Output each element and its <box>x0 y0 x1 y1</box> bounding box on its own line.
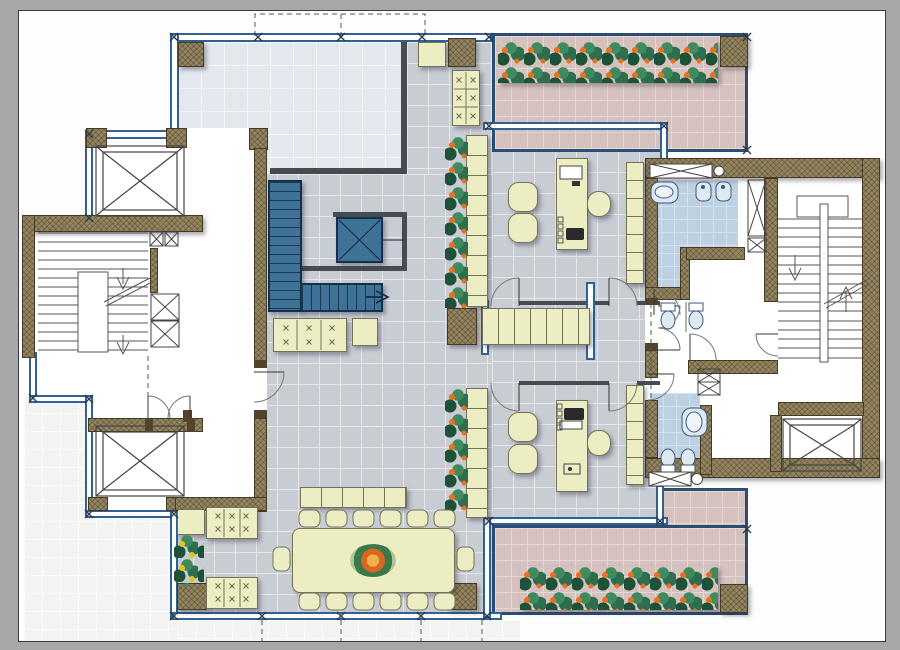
lounge-sofa-top <box>206 507 258 539</box>
terrace-bottom-planter <box>520 566 718 610</box>
rightwing-right-wall <box>862 158 880 478</box>
corridor-wall-lower <box>519 381 609 385</box>
lounge-sofa-bottom <box>206 577 258 609</box>
leftwing-right-wall-upper <box>254 148 267 365</box>
armchair <box>508 213 538 243</box>
cabinet-strip-lower-left <box>466 388 488 518</box>
armchair <box>508 412 538 442</box>
rightwing-top-wall <box>645 158 880 178</box>
hall-sofa <box>452 70 480 126</box>
stairblock-left-wall <box>22 215 35 358</box>
rightwing-elevator-top-wall <box>778 402 864 416</box>
floor-plan-canvas <box>0 0 900 650</box>
door-jamb <box>645 298 658 305</box>
armchair <box>508 444 538 474</box>
hall-side-table <box>418 42 446 67</box>
bathroom-step-wall-b <box>686 247 745 260</box>
column-leftwing-d <box>88 497 108 511</box>
corridor-wall-upper <box>519 301 609 305</box>
lounge-plant <box>174 534 204 586</box>
terrace-top-planter <box>498 41 718 83</box>
rightwing-inner-wall-h <box>688 360 778 374</box>
column-corridor <box>447 308 477 345</box>
stair-sofa <box>273 318 347 352</box>
rightwing-elevator-left-wall <box>770 415 782 472</box>
desk-lower-office <box>556 400 588 492</box>
conference-sideboard <box>300 487 407 508</box>
duct-strip <box>150 248 158 293</box>
cabinet-strip-upper-left <box>466 135 488 307</box>
cabinet-strip-lower-right <box>626 385 644 485</box>
rightwing-left-wall-c <box>645 400 658 458</box>
terrace-bottom-lobe-floor <box>658 488 748 528</box>
cabinet-strip-upper-right <box>626 162 644 284</box>
lounge-square-table <box>177 583 207 610</box>
feature-stair-lower-flight <box>300 283 383 312</box>
armchair <box>508 182 538 212</box>
planter-strip-upper <box>445 136 468 308</box>
rightwing-inner-wall-v <box>764 178 778 302</box>
conference-centerpiece <box>350 544 396 577</box>
office-chair-upper <box>587 191 611 217</box>
stairblock-top-wall <box>22 215 203 232</box>
column-hall-left <box>178 42 204 67</box>
column-terrace-top <box>720 36 748 67</box>
wall-connector-right-bottom <box>656 485 664 525</box>
wall-jog <box>29 395 93 403</box>
rightwing-left-wall-b <box>645 350 658 378</box>
planter-strip-lower <box>445 388 468 512</box>
wall-lounge-jog <box>85 510 178 518</box>
bathroom-lower-right-wall <box>700 405 712 475</box>
left-core-base <box>85 128 267 512</box>
feature-stair-void <box>336 217 383 263</box>
feature-stair-upper-flight <box>268 180 302 312</box>
corridor-cabinet <box>482 308 590 345</box>
white-terrace-strip <box>178 620 520 641</box>
bathroom-upper-floor <box>648 180 738 253</box>
rightwing-left-wall-a <box>645 178 658 305</box>
rightwing-bottom-wall <box>645 458 880 478</box>
wall-top <box>172 33 492 42</box>
stair-side-table <box>352 318 378 346</box>
wall-connector-left <box>483 517 491 618</box>
shaft-right-wall <box>402 212 407 271</box>
door-jamb <box>254 410 267 418</box>
column-leftwing-a <box>86 128 107 148</box>
door-jamb <box>645 343 658 350</box>
column-hall-right <box>448 38 476 67</box>
column-terrace-bottom <box>720 584 748 613</box>
hall-right-wall <box>401 42 407 174</box>
wall-connector-right-top <box>660 122 668 162</box>
office-chair-lower <box>587 430 611 456</box>
door-jamb <box>183 410 192 422</box>
wall-office-bottom <box>483 517 668 525</box>
hall-bottom-wall <box>270 168 407 174</box>
wall-office-top <box>483 122 668 130</box>
door-jamb <box>145 418 153 432</box>
lounge-side-table <box>177 509 205 535</box>
column-leftwing-b <box>166 128 187 148</box>
column-leftwing-c <box>249 128 268 150</box>
wall-bottom <box>172 612 502 620</box>
door-jamb <box>254 360 267 368</box>
desk-upper-office <box>556 158 588 250</box>
shaft-bottom-wall <box>302 266 407 271</box>
